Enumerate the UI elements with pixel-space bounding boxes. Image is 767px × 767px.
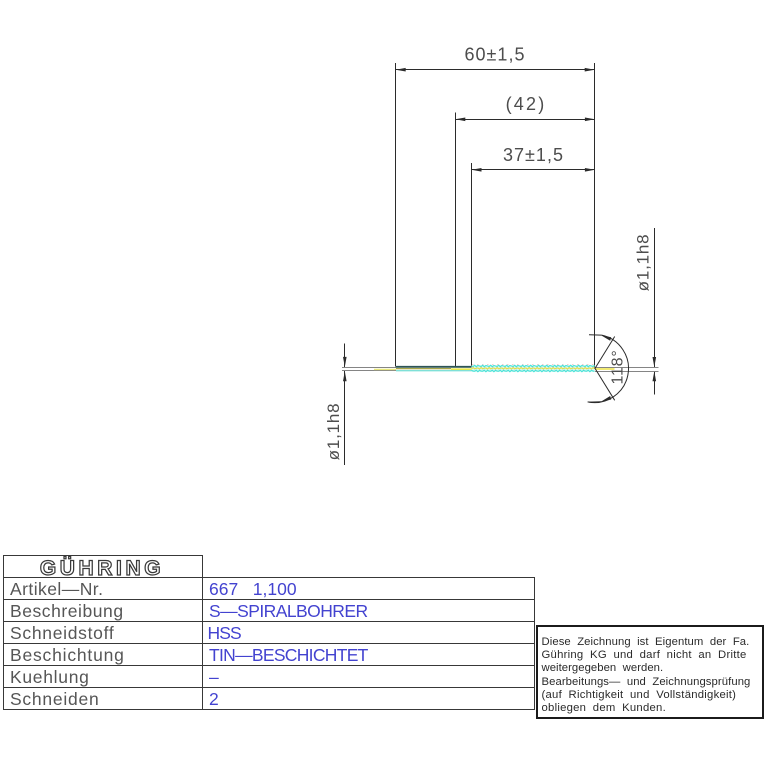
svg-text:ø1,1h8: ø1,1h8 — [634, 234, 653, 292]
svg-text:118°: 118° — [610, 349, 627, 384]
svg-text:37±1,5: 37±1,5 — [503, 145, 564, 165]
svg-text:(42): (42) — [506, 94, 547, 114]
svg-text:ø1,1h8: ø1,1h8 — [324, 403, 343, 461]
svg-text:60±1,5: 60±1,5 — [465, 45, 526, 65]
